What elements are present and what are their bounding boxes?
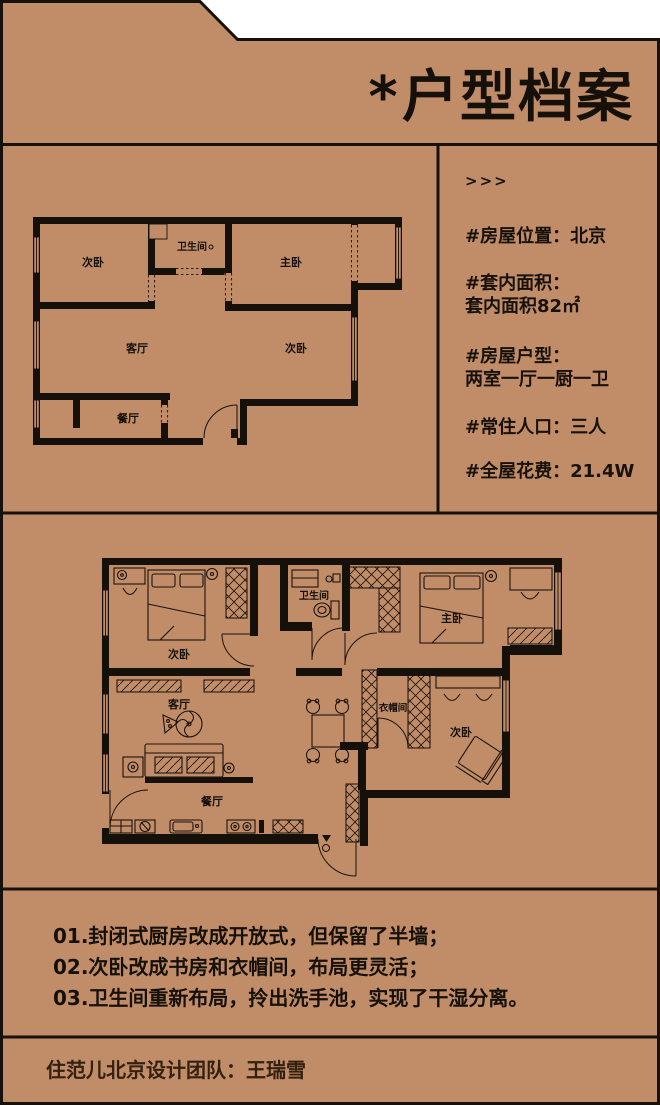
note-line-3: 03.卫生间重新布局，拎出洗手池，实现了干湿分离。 — [53, 983, 528, 1014]
info-area-value: 套内面积82㎡ — [465, 292, 580, 318]
room-label-dining: 餐厅 — [116, 411, 139, 425]
room-label-living: 客厅 — [125, 341, 148, 355]
room-label-dining: 餐厅 — [200, 794, 223, 808]
renovation-notes: 01.封闭式厨房改成开放式，但保留了半墙； 02.次卧改成书房和衣帽间，布局更灵… — [53, 921, 528, 1014]
info-location: #房屋位置：北京 — [465, 222, 606, 248]
room-label-master: 主卧 — [280, 255, 302, 269]
room-label-master: 主卧 — [441, 611, 463, 625]
floor-plan-poster: *户型档案 >>> #房屋位置：北京 #套内面积： 套内面积82㎡ #房屋户型：… — [0, 0, 660, 1105]
room-label-closet: 衣帽间 — [379, 702, 408, 714]
design-team-credit: 住范儿北京设计团队：王瑞雪 — [46, 1054, 306, 1083]
room-label-bedroom2-mid: 次卧 — [285, 341, 307, 355]
plan-before-openings — [148, 225, 359, 423]
info-layout-value: 两室一厅一厨一卫 — [465, 365, 609, 391]
room-label-bathroom: 卫生间 — [299, 589, 329, 602]
room-label-bedroom2-top: 次卧 — [82, 255, 104, 269]
floor-plan-before: 次卧 卫生间 主卧 客厅 次卧 餐厅 — [33, 217, 402, 445]
info-cost: #全屋花费：21.4W — [465, 457, 634, 483]
note-line-2: 02.次卧改成书房和衣帽间，布局更灵活； — [53, 952, 528, 983]
room-label-bathroom: 卫生间 — [177, 240, 207, 253]
floor-plan-after: 次卧 卫生间 主卧 客厅 衣帽间 次卧 餐厅 — [102, 558, 562, 888]
room-label-living: 客厅 — [167, 697, 190, 711]
info-residents: #常住人口：三人 — [465, 413, 606, 439]
note-line-1: 01.封闭式厨房改成开放式，但保留了半墙； — [53, 921, 528, 952]
room-label-study: 次卧 — [450, 725, 472, 739]
chevrons-icon: >>> — [465, 172, 509, 190]
page-title: *户型档案 — [366, 52, 634, 133]
room-label-bedroom2: 次卧 — [168, 647, 190, 661]
